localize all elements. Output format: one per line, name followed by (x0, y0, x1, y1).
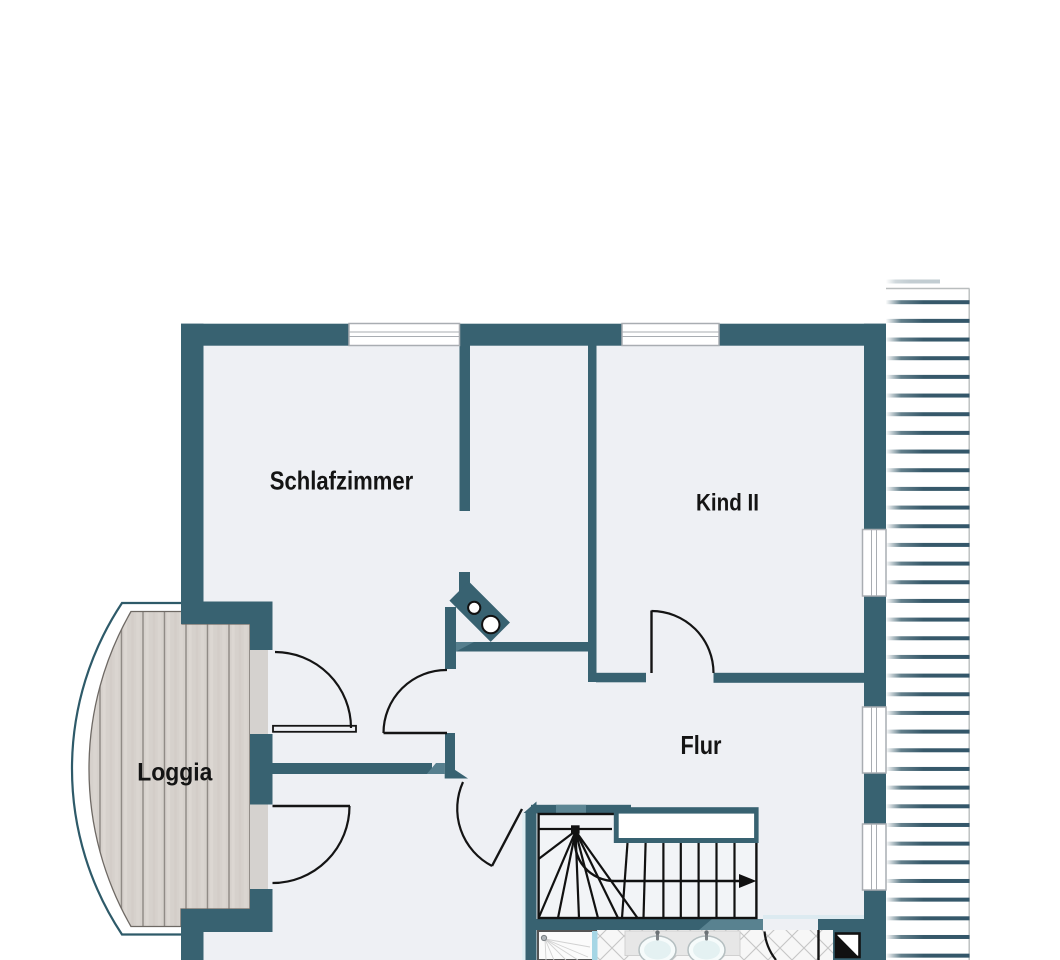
svg-text:Kind II: Kind II (696, 490, 759, 517)
svg-text:Loggia: Loggia (137, 759, 213, 787)
svg-text:Schlafzimmer: Schlafzimmer (270, 466, 414, 496)
svg-text:Flur: Flur (681, 730, 722, 760)
